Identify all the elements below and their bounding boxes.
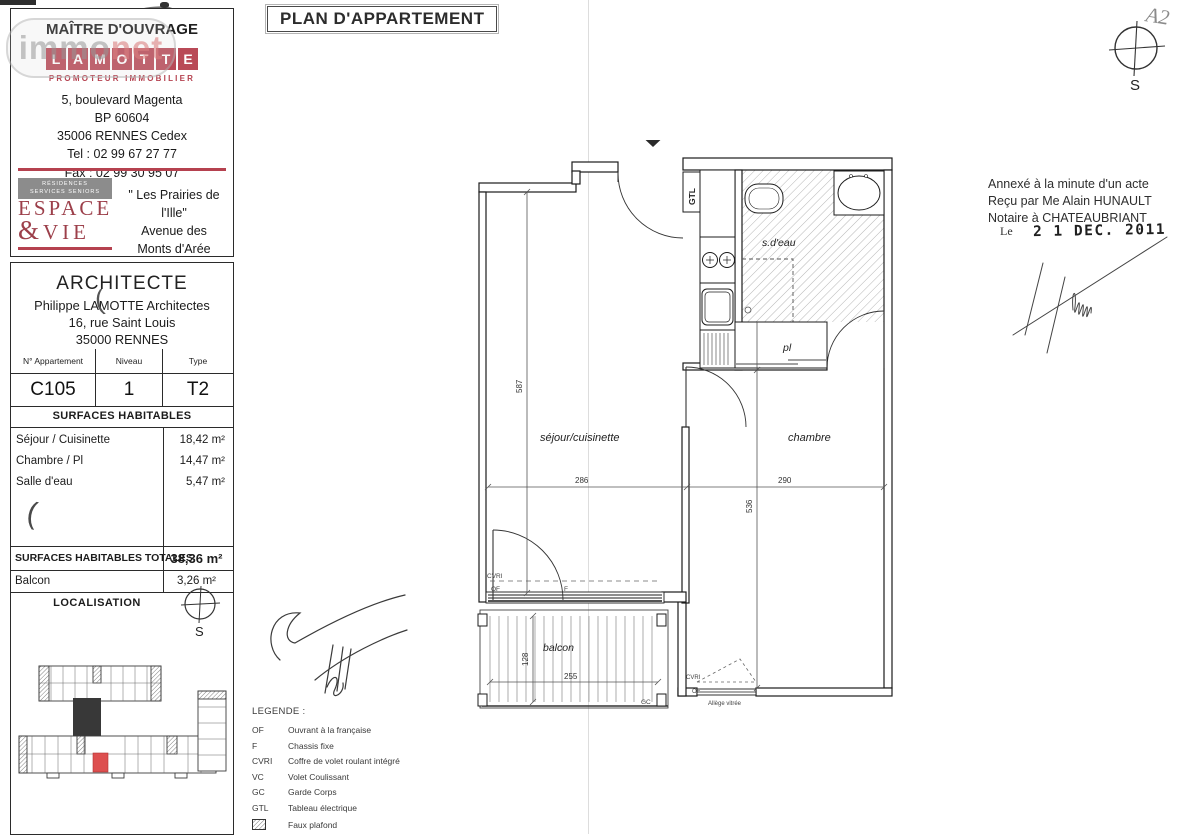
label-cvri: CVRI — [487, 573, 503, 580]
handwritten-signature — [255, 575, 420, 705]
notary-line: Reçu par Me Alain HUNAULT — [988, 193, 1186, 210]
dimension-labels: 587 286 290 536 128 255 — [515, 379, 792, 681]
project-line: " Les Prairies de l'Ille" — [117, 186, 231, 222]
dim-128: 128 — [521, 652, 530, 666]
architect-info-panel: ARCHITECTE Philippe LAMOTTE Architectes … — [10, 262, 234, 835]
logo-letter-tile: T — [134, 48, 154, 70]
label-gc: GC — [641, 699, 651, 706]
localisation-heading: LOCALISATION — [11, 597, 183, 609]
maitre-ouvrage-panel: MAÎTRE D'OUVRAGE L A M O T T E PROMOTEUR… — [10, 8, 234, 257]
apartment-table-values: C105 1 T2 — [11, 374, 233, 407]
legend-row: GCGarde Corps — [252, 787, 462, 797]
label-of-2: OF — [692, 689, 701, 695]
page-title: PLAN D'APPARTEMENT — [267, 6, 497, 32]
rail-post — [657, 614, 666, 626]
project-line: Avenue des — [117, 222, 231, 240]
label-cvri-2: CVRI — [686, 675, 701, 681]
logo-letter-tile: L — [46, 48, 66, 70]
legend-row: FChassis fixe — [252, 741, 462, 751]
address-line: BP 60604 — [11, 109, 233, 127]
notary-line: Annexé à la minute d'un acte — [988, 176, 1186, 193]
map-dark-block — [73, 698, 101, 738]
project-line: Monts d'Arée — [117, 240, 231, 258]
architect-line: Philippe LAMOTTE Architectes — [11, 297, 233, 314]
room-label-pl: pl — [782, 342, 792, 354]
legend-heading: LEGENDE : — [252, 706, 462, 717]
label-f: F — [564, 586, 568, 593]
chambre-window — [697, 659, 756, 695]
balcony — [478, 610, 668, 708]
dim-536: 536 — [745, 499, 754, 513]
rail-post — [478, 694, 487, 706]
logo-letter-tile: T — [156, 48, 176, 70]
map-main-wing — [19, 736, 216, 778]
logo-letter-tile: A — [68, 48, 88, 70]
surface-row: Séjour / Cuisinette 18,42 m² — [11, 430, 233, 451]
svg-text:S: S — [195, 624, 204, 637]
room-label-chambre: chambre — [788, 432, 831, 444]
col-header-type: Type — [163, 349, 233, 373]
map-right-wing — [198, 691, 226, 771]
closet — [735, 322, 827, 368]
surfaces-table: Séjour / Cuisinette 18,42 m² Chambre / P… — [11, 427, 233, 546]
surfaces-heading: SURFACES HABITABLES — [11, 406, 233, 428]
address-line: Tel : 02 99 67 27 77 — [11, 145, 233, 163]
sejour-window — [486, 592, 664, 603]
balcony-door-arc — [493, 530, 563, 600]
scanned-apartment-plan-page: { "watermark": {"immo": "immo", "net": "… — [0, 0, 1186, 834]
notary-annotation: Annexé à la minute d'un acte Reçu par Me… — [988, 176, 1186, 227]
logo-letter-tile: E — [178, 48, 198, 70]
architect-line: 16, rue Saint Louis — [11, 314, 233, 331]
architect-block: ARCHITECTE Philippe LAMOTTE Architectes … — [11, 271, 233, 348]
dim-587: 587 — [515, 379, 524, 393]
localisation-map — [17, 643, 227, 828]
compass-south-icon: S — [179, 585, 225, 637]
floor-plan: GTL — [460, 140, 910, 740]
gtl-label: GTL — [687, 188, 697, 205]
chambre-door-arc — [686, 367, 746, 427]
apartment-niveau: 1 — [96, 374, 163, 406]
logo-underline — [18, 247, 112, 250]
logo-letter-tile: M — [90, 48, 110, 70]
unit-pointer-triangle-icon — [636, 140, 670, 147]
logo-letter-tile: O — [112, 48, 132, 70]
map-top-wing — [39, 666, 161, 701]
dim-286: 286 — [575, 476, 589, 485]
legend-row: CVRICoffre de volet roulant intégré — [252, 756, 462, 766]
col-header-appartement: N° Appartement — [11, 349, 96, 373]
hatch-swatch-icon — [252, 819, 266, 830]
compass-south-label: S — [1130, 77, 1140, 92]
col-header-niveau: Niveau — [96, 349, 163, 373]
surface-row: Salle d'eau 5,47 m² — [11, 472, 233, 493]
label-allege-vitree: Allège vitrée — [708, 701, 742, 707]
compass-north-icon: S — [1104, 16, 1176, 92]
dim-290: 290 — [778, 476, 792, 485]
lamotte-logo: L A M O T T E — [11, 48, 233, 70]
room-label-sejour: séjour/cuisinette — [540, 432, 620, 444]
rail-post — [478, 614, 487, 626]
surface-row: Chambre / Pl 14,47 m² — [11, 451, 233, 472]
legend-row: OFOuvrant à la française — [252, 725, 462, 735]
room-label-balcon: balcon — [543, 642, 574, 654]
surfaces-total-row: SURFACES HABITABLES TOTALES 38,36 m² — [11, 546, 233, 571]
apartment-table-header: N° Appartement Niveau Type — [11, 349, 233, 374]
apartment-number: C105 — [11, 374, 96, 406]
legend-row: VCVolet Coulissant — [252, 772, 462, 782]
logo-subtitle: PROMOTEUR IMMOBILIER — [11, 74, 233, 83]
scan-smudge — [0, 0, 36, 5]
rail-post — [657, 694, 666, 706]
apartment-type: T2 — [163, 374, 233, 406]
architect-heading: ARCHITECTE — [11, 271, 233, 297]
address-line: 35006 RENNES Cedex — [11, 127, 233, 145]
red-divider — [18, 168, 226, 171]
architect-line: 35000 RENNES — [11, 331, 233, 348]
legend-row-faux-plafond: Faux plafond — [252, 819, 462, 832]
maitre-ouvrage-heading: MAÎTRE D'OUVRAGE — [11, 21, 233, 38]
notary-signature — [995, 235, 1175, 355]
room-label-sdeau: s.d'eau — [762, 237, 796, 249]
label-of: OF — [491, 586, 500, 593]
legend: LEGENDE : OFOuvrant à la française FChas… — [252, 706, 462, 837]
map-highlighted-unit — [93, 753, 108, 772]
legend-row: GTLTableau électrique — [252, 803, 462, 813]
dim-255: 255 — [564, 672, 578, 681]
entry-door-arc — [618, 173, 683, 238]
address-line: 5, boulevard Magenta — [11, 91, 233, 109]
kitchenette — [700, 170, 735, 368]
